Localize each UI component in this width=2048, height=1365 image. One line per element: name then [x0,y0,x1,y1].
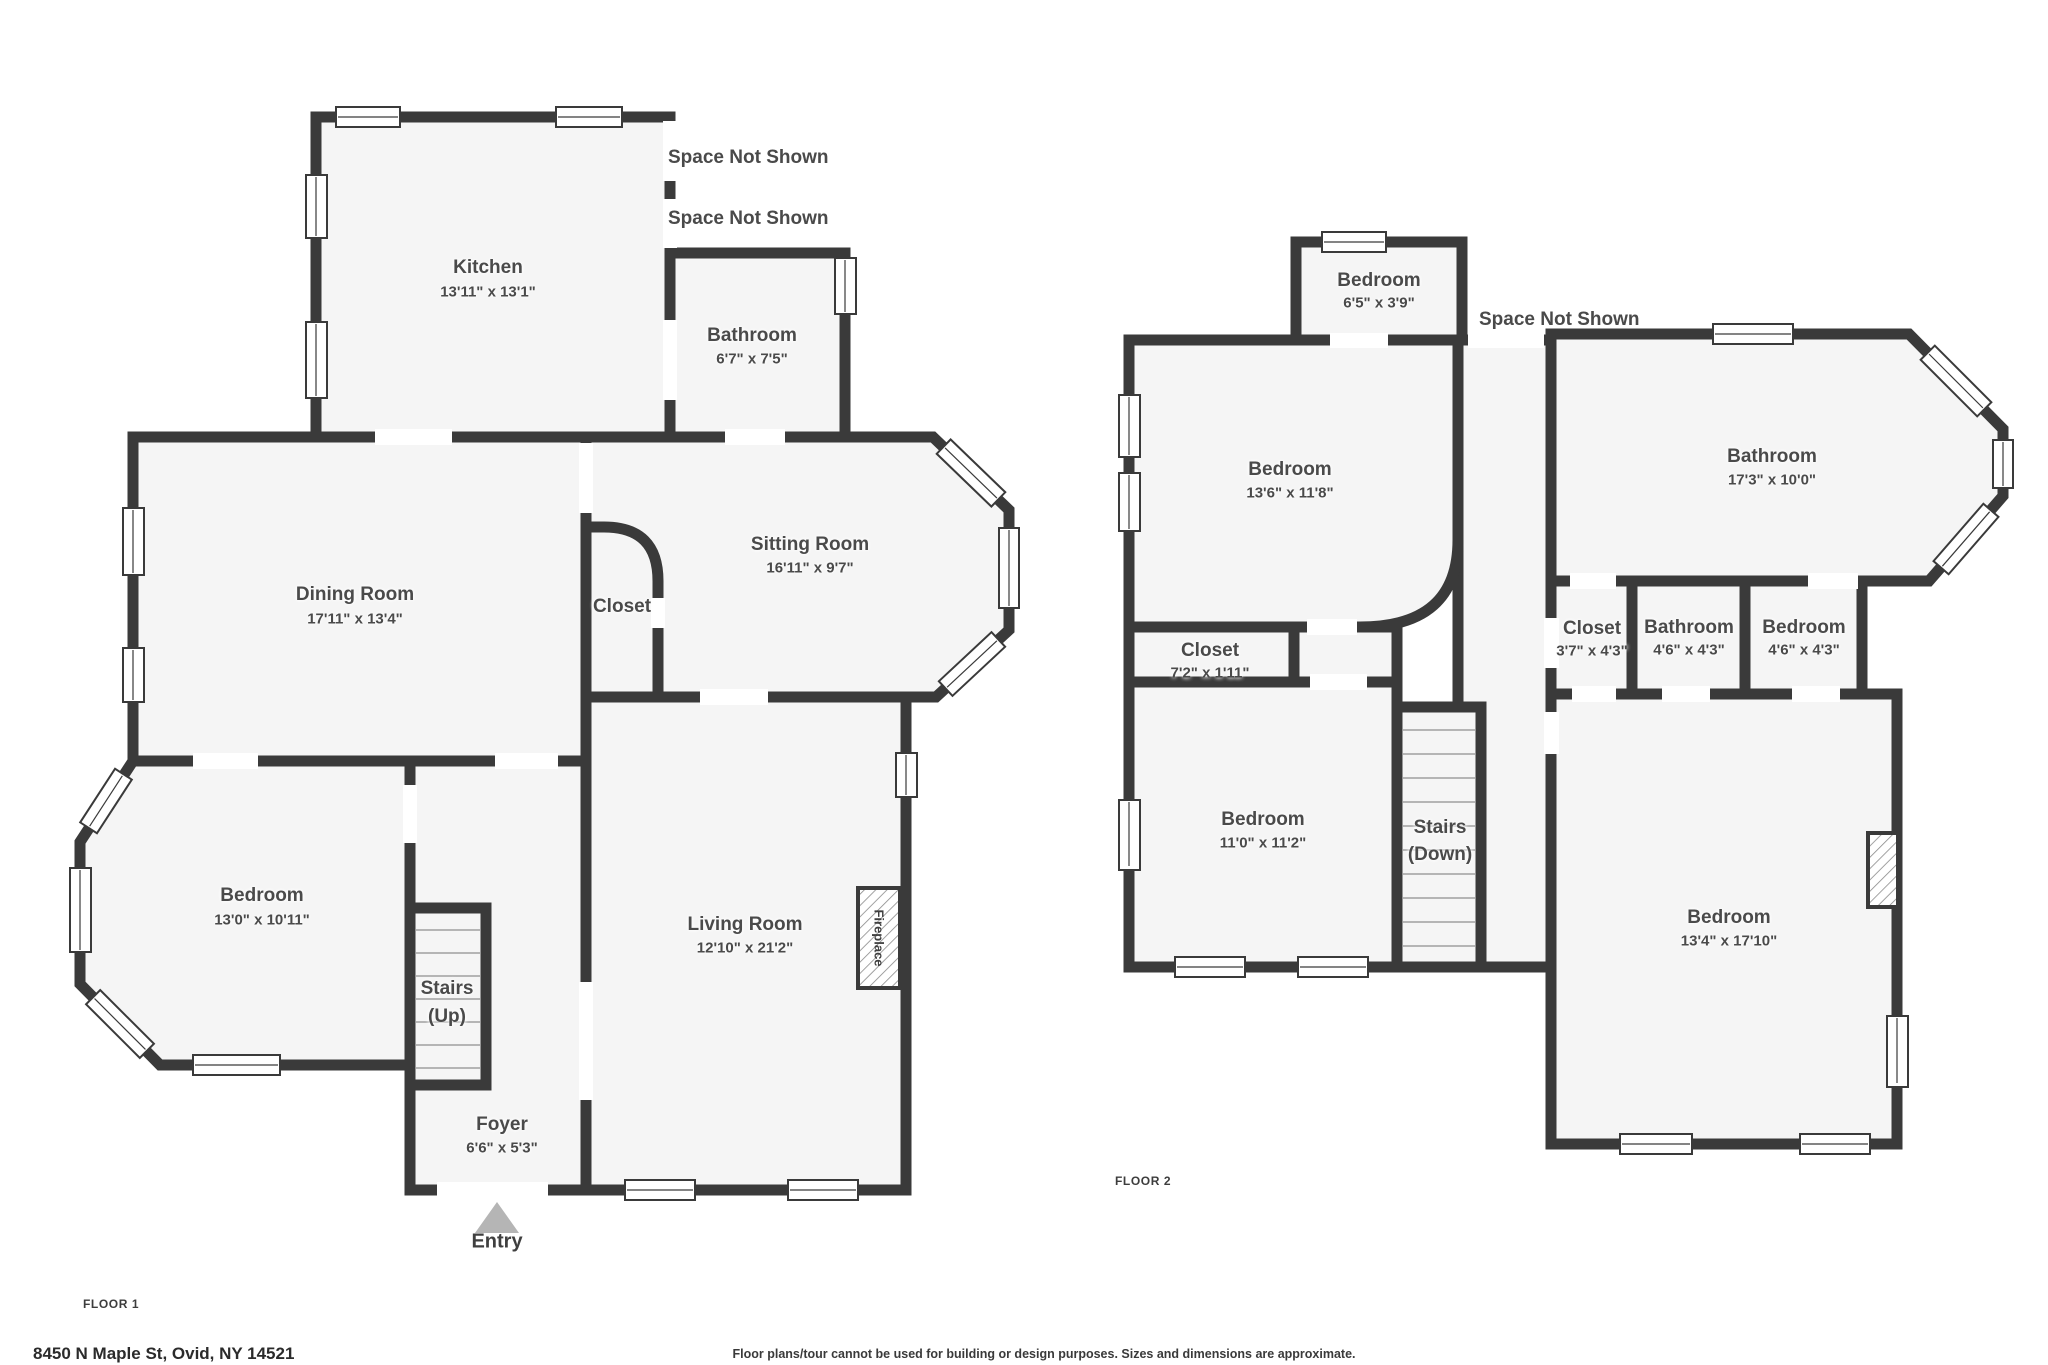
stairs-down-label-2: (Down) [1408,844,1472,866]
room-label-bedroom-big: Bedroom [1687,907,1770,929]
room-label-closet-wide: Closet [1181,640,1239,662]
stairs-down-label-1: Stairs [1414,817,1467,839]
room-label-foyer: Foyer [476,1114,528,1136]
stairs-up-label-2: (Up) [428,1006,466,1028]
fireplace-label: Fireplace [872,909,887,966]
room-dims-sitting: 16'11" x 9'7" [766,560,853,577]
stairs-up-label-1: Stairs [421,978,474,1000]
floorplan-svg [0,0,2048,1365]
address-text: 8450 N Maple St, Ovid, NY 14521 [33,1344,294,1364]
room-label-bathroom-small: Bathroom [1644,617,1734,639]
room-dims-bedroom-small: 4'6" x 4'3" [1768,642,1839,659]
room-label-kitchen: Kitchen [453,257,523,279]
room-dims-bedroom-left: 13'6" x 11'8" [1246,485,1333,502]
room-dims-bedroom-big: 13'4" x 17'10" [1681,933,1777,950]
floorplan-page: Kitchen 13'11" x 13'1" Space Not Shown S… [0,0,2048,1365]
disclaimer-text: Floor plans/tour cannot be used for buil… [732,1347,1355,1361]
floor1-plan [70,107,1019,1233]
room-label-bathroom-main: Bathroom [1727,446,1817,468]
room-dims-closet-small: 3'7" x 4'3" [1556,643,1627,660]
room-dims-foyer: 6'6" x 5'3" [466,1140,537,1157]
room-label-bathroom-f1: Bathroom [707,325,797,347]
room-label-bedroom-top: Bedroom [1337,270,1420,292]
room-dims-living: 12'10" x 21'2" [697,940,793,957]
room-dims-kitchen: 13'11" x 13'1" [440,284,536,301]
room-dims-bedroom-mid: 11'0" x 11'2" [1220,835,1306,852]
chimney-hatch [1868,833,1898,907]
floor1-tag: FLOOR 1 [83,1297,139,1311]
room-label-bedroom-small: Bedroom [1762,617,1845,639]
entry-label: Entry [471,1231,522,1254]
room-label-closet-small: Closet [1563,618,1621,640]
floor2-plan [1119,232,2013,1154]
room-label-bedroom-f1: Bedroom [220,885,303,907]
room-dims-dining: 17'11" x 13'4" [307,611,403,628]
entry-arrow-icon [475,1202,519,1233]
floor2-tag: FLOOR 2 [1115,1174,1171,1188]
space-not-shown-label-2: Space Not Shown [668,208,828,230]
floor1-rooms [80,117,1009,1190]
floor2-rooms [1129,242,2003,1144]
room-dims-closet-wide: 7'2" x 1'11" [1171,665,1250,682]
room-dims-bathroom-f1: 6'7" x 7'5" [716,351,787,368]
room-label-bedroom-mid: Bedroom [1221,809,1304,831]
room-label-bedroom-left: Bedroom [1248,459,1331,481]
room-bedroom-left [1129,340,1458,627]
room-label-dining: Dining Room [296,584,414,606]
landing-strip [1294,627,1397,682]
room-dims-bedroom-f1: 13'0" x 10'11" [214,912,310,929]
room-label-closet-f1: Closet [593,596,651,618]
room-dims-bathroom-small: 4'6" x 4'3" [1653,642,1724,659]
room-dims-bathroom-main: 17'3" x 10'0" [1728,472,1816,489]
room-label-living: Living Room [687,914,802,936]
space-not-shown-label-1: Space Not Shown [668,147,828,169]
room-dims-bedroom-top: 6'5" x 3'9" [1343,295,1414,312]
space-not-shown-label-3: Space Not Shown [1479,309,1639,331]
room-label-sitting: Sitting Room [751,534,869,556]
